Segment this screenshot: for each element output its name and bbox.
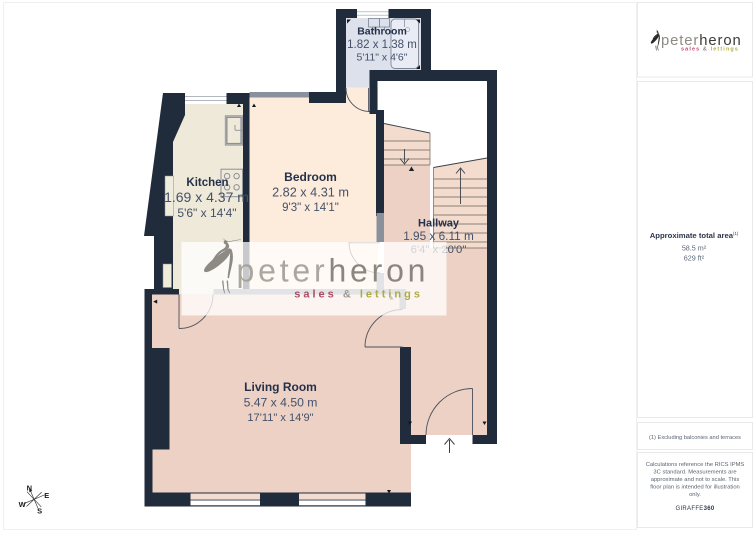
svg-text:Living Room: Living Room [244, 380, 317, 394]
svg-text:GIRAFFE360: GIRAFFE360 [675, 506, 714, 512]
svg-text:W: W [19, 500, 27, 509]
svg-text:1.82 x 1.38 m: 1.82 x 1.38 m [347, 39, 417, 51]
svg-text:629 ft²: 629 ft² [684, 254, 705, 263]
svg-text:Calculations reference the RIC: Calculations reference the RICS IPMS [646, 462, 745, 468]
svg-text:17'11" x 14'9": 17'11" x 14'9" [247, 412, 313, 424]
svg-text:Kitchen: Kitchen [186, 177, 228, 189]
svg-text:sales & lettings: sales & lettings [294, 289, 423, 301]
svg-text:5.47 x 4.50 m: 5.47 x 4.50 m [244, 396, 318, 410]
svg-text:approximate and not to scale.: approximate and not to scale. This [651, 477, 740, 483]
svg-text:58.5 m²: 58.5 m² [682, 244, 707, 253]
svg-text:sales & lettings: sales & lettings [681, 47, 739, 53]
svg-text:Approximate total area(1): Approximate total area(1) [650, 231, 739, 240]
svg-text:1.69 x 4.37 m: 1.69 x 4.37 m [164, 189, 249, 205]
svg-text:(1) Excluding balconies and te: (1) Excluding balconies and terraces [649, 435, 741, 441]
svg-text:3C standard. Measurements are: 3C standard. Measurements are [653, 470, 736, 476]
svg-text:5'11" x 4'6": 5'11" x 4'6" [357, 52, 408, 64]
svg-text:1.95 x 6.11 m: 1.95 x 6.11 m [403, 229, 474, 243]
svg-text:Hallway: Hallway [418, 218, 460, 230]
svg-text:Bathroom: Bathroom [357, 26, 407, 38]
svg-text:S: S [37, 506, 42, 515]
svg-text:9'3" x 14'1": 9'3" x 14'1" [282, 202, 339, 214]
svg-text:peterheron: peterheron [237, 253, 430, 289]
svg-text:Bedroom: Bedroom [284, 170, 337, 184]
svg-text:E: E [44, 491, 49, 500]
svg-text:5'6" x 14'4": 5'6" x 14'4" [177, 206, 236, 220]
svg-text:2.82 x 4.31 m: 2.82 x 4.31 m [272, 186, 349, 200]
svg-text:N: N [27, 484, 32, 493]
svg-text:only.: only. [689, 492, 701, 498]
svg-text:floor plan is intended for ill: floor plan is intended for illustration [650, 485, 740, 491]
